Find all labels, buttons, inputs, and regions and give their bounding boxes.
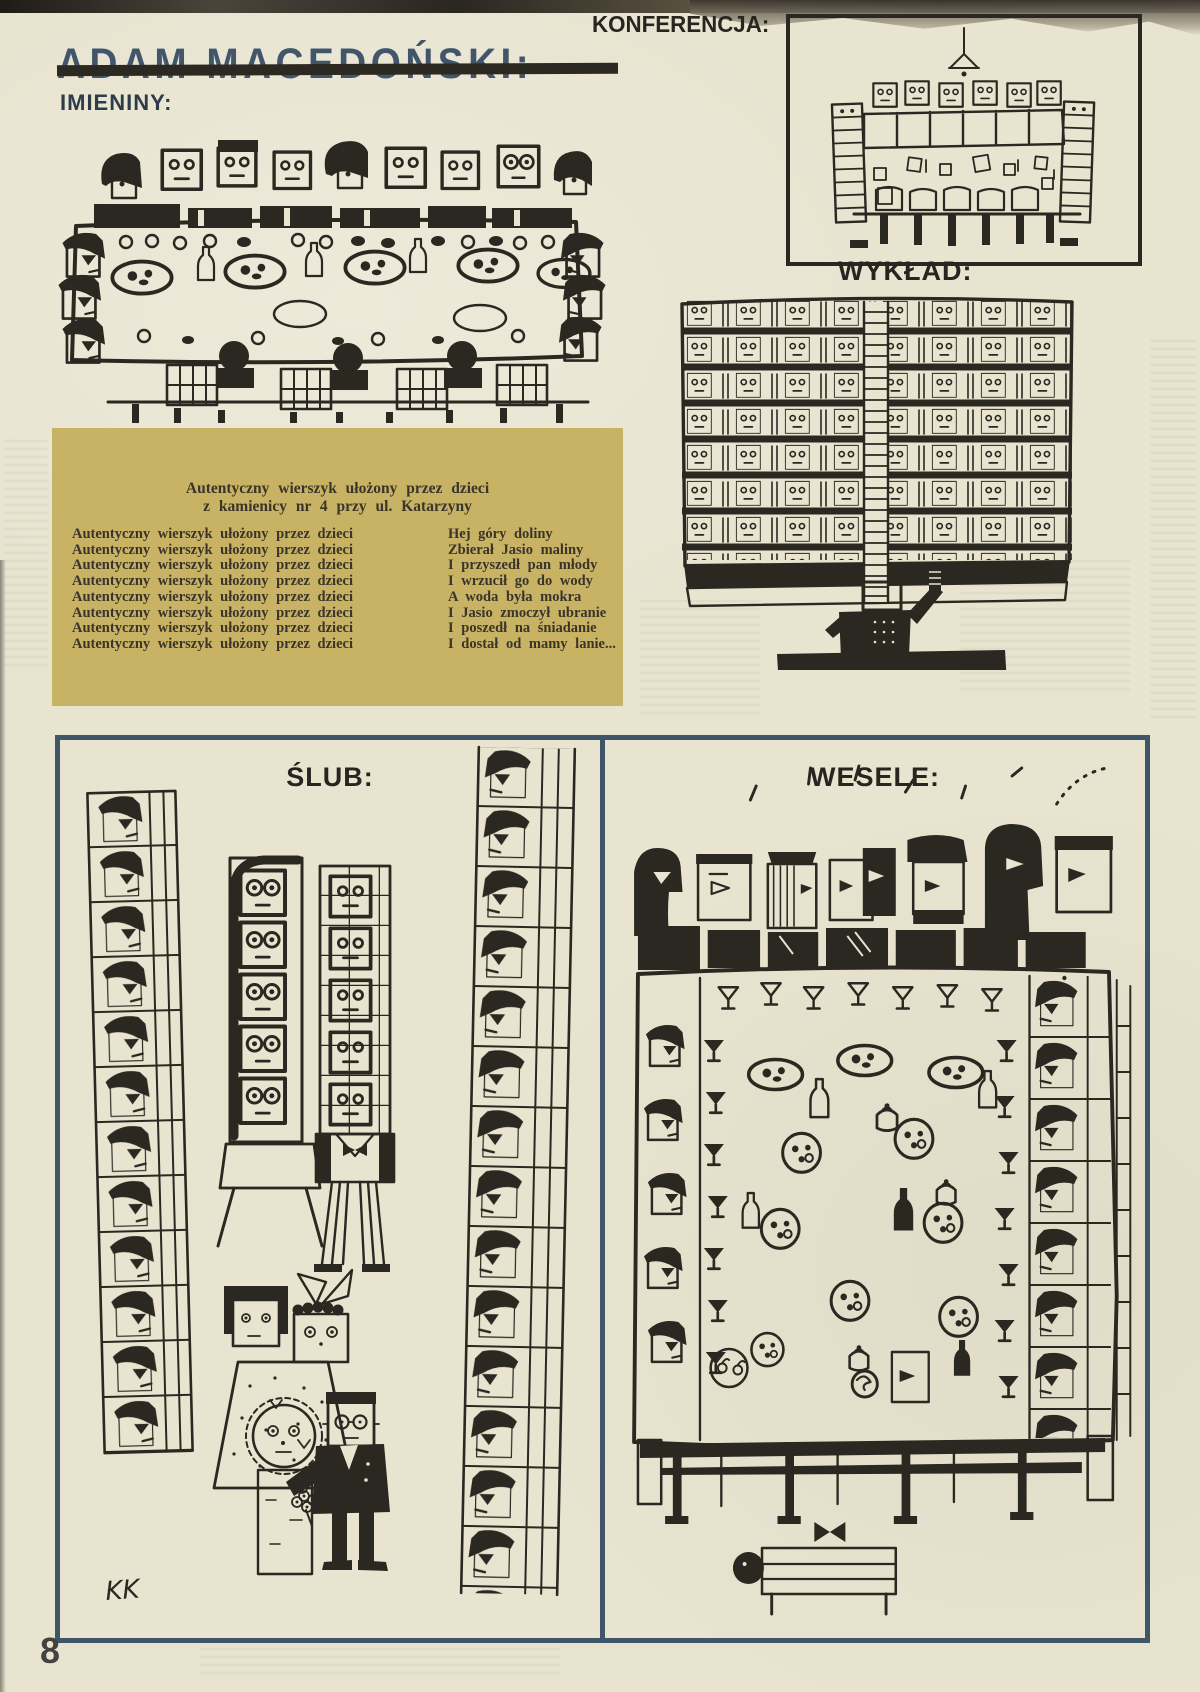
guest-woman	[325, 141, 368, 188]
maid-head	[293, 1270, 353, 1362]
poem-right-line: Zbierał Jasio maliny	[448, 543, 583, 559]
konferencja-cartoon	[790, 18, 1138, 262]
caption-imieniny: IMIENINY:	[60, 90, 172, 116]
poem-left-line: Autentyczny wierszyk ułożony przez dziec…	[72, 637, 448, 653]
guest-man-hat	[218, 140, 258, 186]
slub-panel: KK ŚLUB:	[60, 740, 605, 1638]
glasses-and-food	[704, 983, 1019, 1402]
center-aisle-ladder	[864, 302, 888, 602]
poem-left-line: Autentyczny wierszyk ułożony przez dziec…	[72, 543, 448, 559]
bride-totem	[218, 858, 322, 1246]
poem-title: Autentyczny wierszyk ułożony przez dziec…	[52, 480, 623, 515]
guest-woman	[101, 153, 142, 198]
guest-man	[274, 152, 310, 188]
poem-rows: Autentyczny wierszyk ułożony przez dziec…	[72, 527, 623, 653]
groom-totem	[314, 866, 394, 1272]
title-underline	[57, 63, 618, 76]
poem-left-line: Autentyczny wierszyk ułożony przez dziec…	[72, 621, 448, 637]
sleeping-guest	[733, 1522, 896, 1614]
delegates-row	[873, 81, 1060, 106]
scan-left-edge	[0, 560, 6, 1692]
caption-wesele: WESELE:	[605, 762, 1145, 793]
konferencja-frame	[786, 14, 1142, 266]
table-bottom-rim	[638, 1436, 1113, 1524]
bride	[246, 1398, 322, 1574]
caption-slub: ŚLUB:	[60, 762, 600, 793]
ceiling-lamp-icon	[949, 28, 979, 77]
poem-right-line: A woda była mokra	[448, 590, 581, 606]
guest-man-glasses	[498, 146, 539, 187]
poem-left-line: Autentyczny wierszyk ułożony przez dziec…	[72, 558, 448, 574]
groom	[286, 1392, 390, 1571]
guest-woman	[554, 151, 592, 194]
poem-row: Autentyczny wierszyk ułożony przez dziec…	[72, 543, 623, 559]
wyklad-cartoon	[672, 288, 1082, 670]
poem-row: Autentyczny wierszyk ułożony przez dziec…	[72, 558, 623, 574]
poem-right-line: I wrzucił go do wody	[448, 574, 593, 590]
poem-right-line: I poszedł na śniadanie	[448, 621, 597, 637]
showthrough-text	[1150, 340, 1196, 720]
wedding-group	[214, 1270, 390, 1574]
guest-man	[162, 150, 201, 189]
poem-left-line: Autentyczny wierszyk ułożony przez dziec…	[72, 590, 448, 606]
poem-right-line: I dostał od mamy lanie...	[448, 637, 616, 653]
page-number: 8	[40, 1630, 60, 1672]
poem-left-line: Autentyczny wierszyk ułożony przez dziec…	[72, 606, 448, 622]
poem-row: Autentyczny wierszyk ułożony przez dziec…	[72, 621, 623, 637]
imieniny-cartoon	[48, 118, 618, 423]
wedding-guest-heads	[634, 824, 1113, 940]
artist-initials: KK	[104, 1575, 142, 1607]
poem-right-line: I Jasio zmoczył ubranie	[448, 606, 606, 622]
poem-row: Autentyczny wierszyk ułożony przez dziec…	[72, 574, 623, 590]
poem-row: Autentyczny wierszyk ułożony przez dziec…	[72, 527, 623, 543]
bride-head-veil	[768, 852, 816, 928]
slub-cartoon: KK	[60, 740, 600, 1628]
wesele-panel: WESELE:	[605, 740, 1145, 1638]
poem-title-line1: Autentyczny wierszyk ułożony przez dziec…	[52, 480, 623, 498]
wesele-cartoon	[605, 740, 1140, 1628]
plates-and-bottles	[112, 234, 590, 345]
poem-left-line: Autentyczny wierszyk ułożony przez dziec…	[72, 527, 448, 543]
caption-wyklad: WYKŁAD:	[838, 256, 972, 287]
guest-man	[386, 148, 425, 187]
chairs-row	[850, 187, 1080, 248]
poem-title-line2: z kamienicy nr 4 przy ul. Katarzyny	[52, 498, 623, 516]
poem-row: Autentyczny wierszyk ułożony przez dziec…	[72, 590, 623, 606]
poem-row: Autentyczny wierszyk ułożony przez dziec…	[72, 606, 623, 622]
poem-row: Autentyczny wierszyk ułożony przez dziec…	[72, 637, 623, 653]
poem-right-line: Hej góry doliny	[448, 527, 553, 543]
showthrough-text	[200, 1640, 560, 1680]
poem-box: Autentyczny wierszyk ułożony przez dziec…	[52, 428, 623, 706]
table-legs	[132, 404, 563, 423]
poem-left-line: Autentyczny wierszyk ułożony przez dziec…	[72, 574, 448, 590]
guest-man	[442, 152, 478, 188]
showthrough-text	[4, 440, 48, 670]
bottom-panels-frame: KK ŚLUB:	[55, 735, 1150, 1643]
poem-right-line: I przyszedł pan młody	[448, 558, 597, 574]
caption-konferencja: KONFERENCJA:	[592, 11, 769, 38]
